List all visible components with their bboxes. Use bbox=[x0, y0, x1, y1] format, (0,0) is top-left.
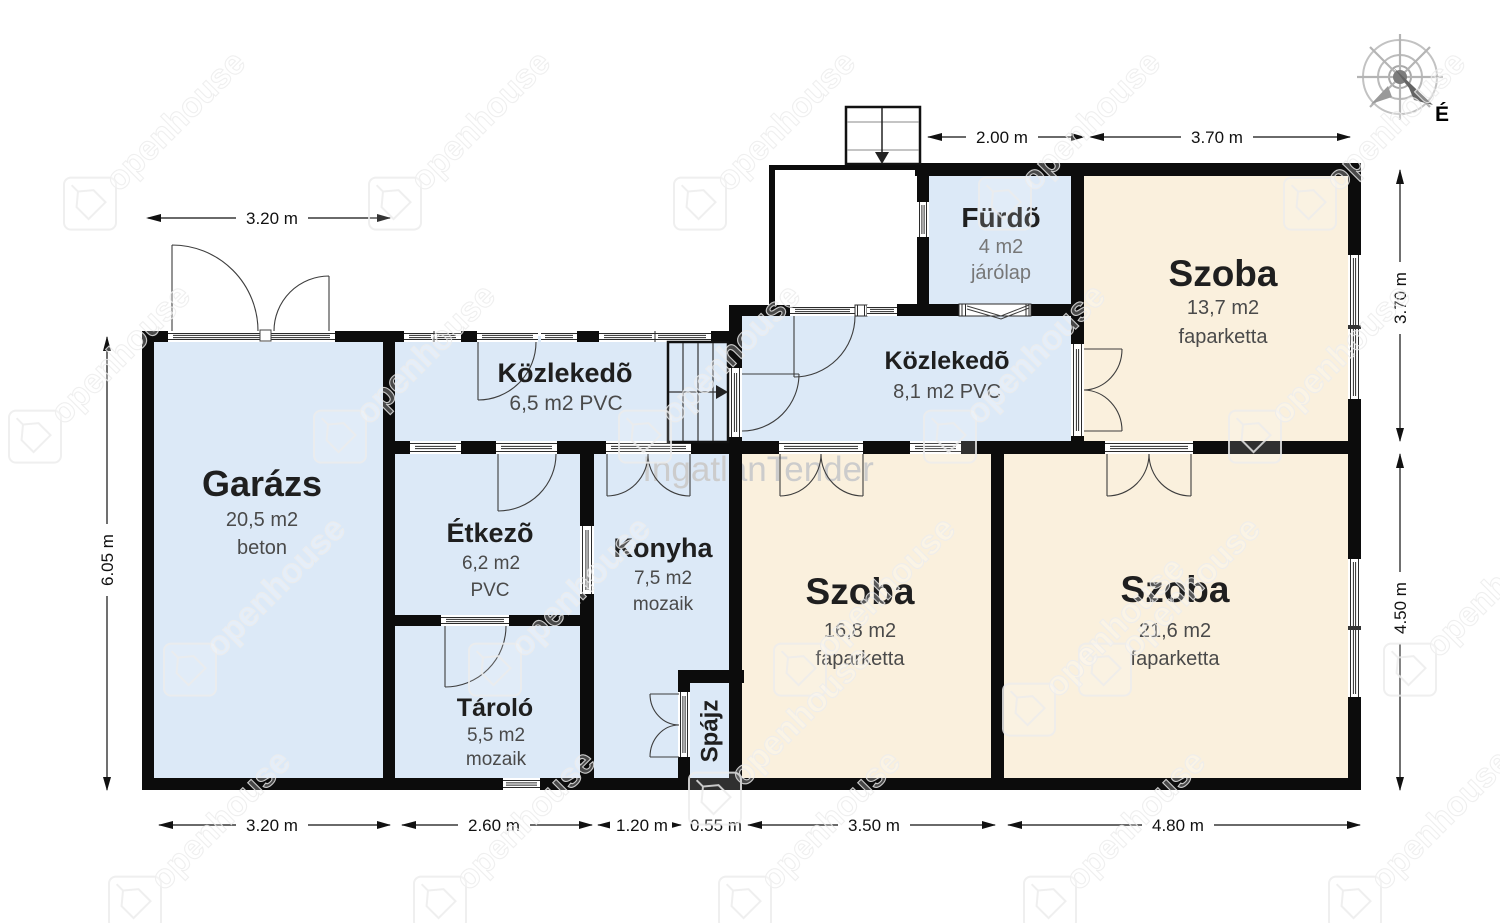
svg-text:Közlekedõ: Közlekedõ bbox=[497, 358, 632, 388]
svg-text:járólap: járólap bbox=[970, 262, 1031, 284]
svg-text:IngatlanTender: IngatlanTender bbox=[642, 450, 874, 489]
svg-text:6,5 m2 PVC: 6,5 m2 PVC bbox=[509, 392, 622, 415]
svg-text:4.50 m: 4.50 m bbox=[1391, 582, 1410, 634]
svg-text:6.05 m: 6.05 m bbox=[98, 534, 117, 586]
svg-text:Szoba: Szoba bbox=[1169, 253, 1278, 294]
svg-text:4 m2: 4 m2 bbox=[979, 236, 1023, 258]
svg-text:6,2 m2: 6,2 m2 bbox=[462, 553, 520, 574]
svg-text:7,5 m2: 7,5 m2 bbox=[634, 568, 692, 589]
svg-text:É: É bbox=[1435, 103, 1449, 126]
svg-text:3.20 m: 3.20 m bbox=[246, 209, 298, 228]
svg-text:1.20 m: 1.20 m bbox=[616, 816, 668, 835]
svg-text:Spájz: Spájz bbox=[696, 700, 723, 763]
svg-text:3.20 m: 3.20 m bbox=[246, 816, 298, 835]
svg-text:Garázs: Garázs bbox=[202, 463, 322, 504]
svg-text:mozaik: mozaik bbox=[633, 594, 694, 615]
svg-text:PVC: PVC bbox=[470, 580, 509, 601]
svg-text:2.00 m: 2.00 m bbox=[976, 128, 1028, 147]
svg-text:mozaik: mozaik bbox=[466, 749, 527, 770]
svg-text:3.70 m: 3.70 m bbox=[1191, 128, 1243, 147]
svg-text:20,5 m2: 20,5 m2 bbox=[226, 509, 298, 531]
svg-text:13,7 m2: 13,7 m2 bbox=[1187, 297, 1259, 319]
svg-text:5,5 m2: 5,5 m2 bbox=[467, 725, 525, 746]
svg-text:Tároló: Tároló bbox=[457, 694, 533, 722]
svg-text:Étkezõ: Étkezõ bbox=[446, 517, 533, 548]
svg-text:faparketta: faparketta bbox=[1179, 326, 1269, 348]
